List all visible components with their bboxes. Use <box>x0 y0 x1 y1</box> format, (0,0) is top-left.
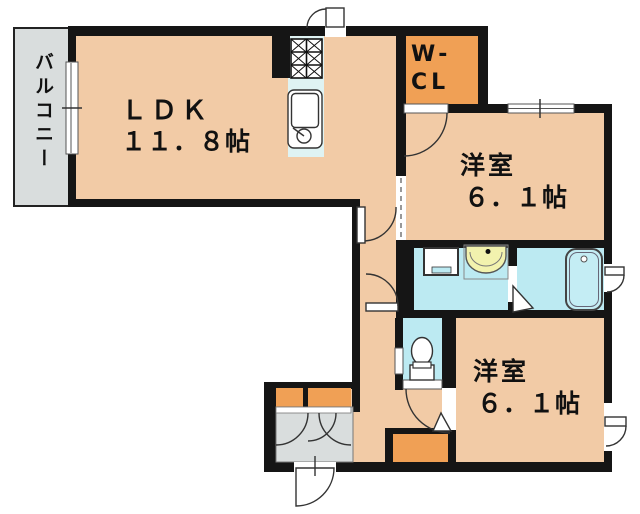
genkan-floor <box>276 407 353 462</box>
room-label-balcony: バルコニー <box>30 52 57 212</box>
room-label-wcl: W- CL <box>411 41 451 97</box>
wcl-line1: W- <box>411 41 451 69</box>
room-size-ldk: １１．８帖 <box>121 122 251 158</box>
wall-low-horizontal <box>396 310 604 318</box>
toilet-icon <box>410 338 434 381</box>
wall-cabinet-divider <box>303 388 308 407</box>
wall-entrance-top <box>264 382 358 389</box>
toilet-window <box>395 348 403 374</box>
floorplan-page: バルコニー ＬＤＫ １１．８帖 W- CL 洋室 ６．１帖 洋室 ６．１帖 <box>0 0 640 514</box>
bedroom-bottom-window-gap <box>604 403 612 451</box>
bedroom-bottom-outer-door-leaf <box>605 417 626 426</box>
kitchen-sink-icon <box>288 90 322 148</box>
bathtub-icon <box>566 249 602 310</box>
cabinet-door-track <box>276 407 351 413</box>
wcl-line2: CL <box>411 69 451 97</box>
shoe-cabinet-left <box>276 388 303 407</box>
room-label-bedroom-bottom: 洋室 <box>473 352 529 388</box>
wall-entrance-left <box>264 382 276 472</box>
room-size-bedroom-bottom: ６．１帖 <box>477 384 581 420</box>
room-label-bedroom-top: 洋室 <box>460 146 516 182</box>
toilet-door-track <box>403 380 442 389</box>
floorplan-drawing <box>0 0 640 514</box>
washbasin-faucet <box>486 249 491 254</box>
wall-wcl-right <box>478 26 488 113</box>
shoe-cabinet-right <box>308 388 351 407</box>
room-size-bedroom-top: ６．１帖 <box>464 178 568 214</box>
service-door-leaf <box>326 8 344 27</box>
wall-washroom-left <box>396 240 414 318</box>
wcl-door-track <box>404 104 448 113</box>
corridor-door-leaf <box>366 303 398 311</box>
washing-machine-pan-icon <box>424 248 458 275</box>
ldk-corridor-door-leaf <box>357 207 365 243</box>
service-door-arc <box>307 9 326 28</box>
wall-ldk-bottom <box>68 199 360 207</box>
wall-kitchen-chunk <box>272 26 290 78</box>
bath-outer-door-leaf <box>605 267 624 275</box>
closet-box <box>393 434 448 462</box>
gas-stove-icon <box>291 39 322 78</box>
